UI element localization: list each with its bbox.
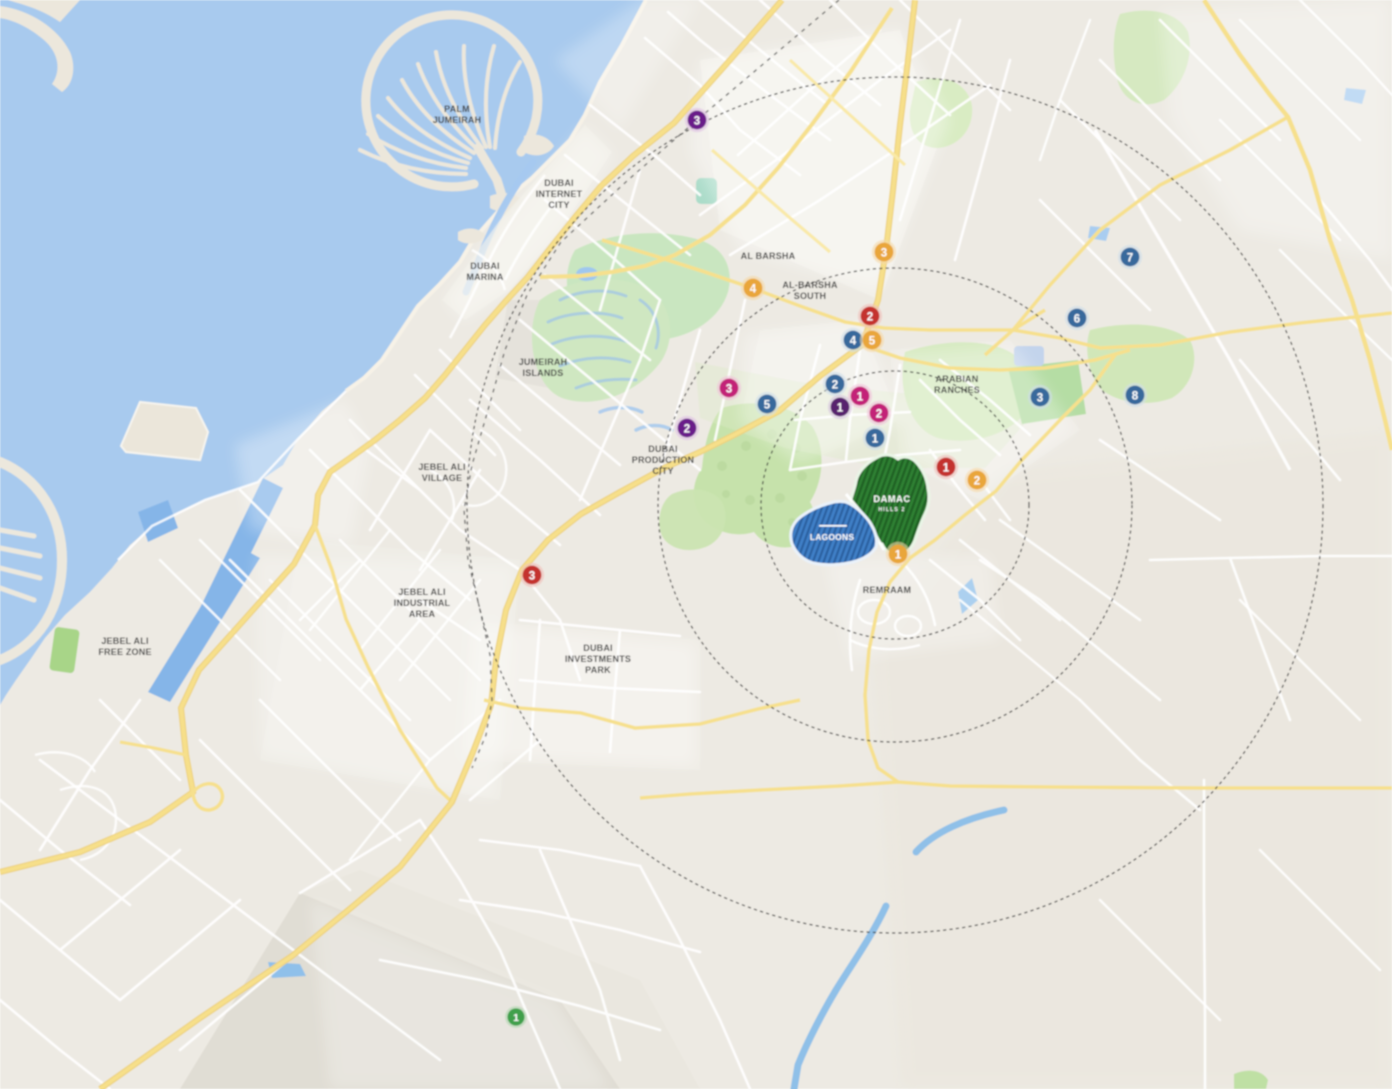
svg-text:1: 1 bbox=[513, 1012, 519, 1024]
svg-text:DUBAIMARINA: DUBAIMARINA bbox=[466, 261, 503, 282]
svg-text:3: 3 bbox=[529, 571, 535, 583]
svg-text:3: 3 bbox=[1037, 393, 1043, 405]
svg-text:2: 2 bbox=[974, 476, 980, 488]
svg-text:8: 8 bbox=[1132, 391, 1139, 403]
svg-text:JEBEL ALIFREE ZONE: JEBEL ALIFREE ZONE bbox=[98, 636, 151, 657]
svg-text:2: 2 bbox=[876, 409, 882, 421]
svg-text:LAGOONS: LAGOONS bbox=[810, 532, 855, 542]
svg-text:JEBEL ALIVILLAGE: JEBEL ALIVILLAGE bbox=[418, 462, 465, 483]
svg-text:3: 3 bbox=[881, 248, 887, 260]
svg-text:3: 3 bbox=[694, 116, 700, 128]
svg-text:6: 6 bbox=[1074, 314, 1080, 326]
svg-text:1: 1 bbox=[943, 463, 950, 475]
svg-text:4: 4 bbox=[850, 336, 857, 348]
svg-text:1: 1 bbox=[837, 403, 844, 415]
svg-text:2: 2 bbox=[684, 424, 690, 436]
svg-text:7: 7 bbox=[1127, 253, 1133, 265]
svg-text:JUMEIRAHISLANDS: JUMEIRAHISLANDS bbox=[519, 357, 568, 378]
svg-text:REMRAAM: REMRAAM bbox=[863, 585, 911, 595]
svg-text:DAMAC: DAMAC bbox=[873, 494, 910, 504]
svg-text:5: 5 bbox=[869, 336, 876, 348]
svg-text:HILLS 2: HILLS 2 bbox=[878, 507, 905, 513]
svg-text:AL BARSHA: AL BARSHA bbox=[741, 251, 796, 261]
svg-text:1: 1 bbox=[872, 434, 879, 446]
svg-text:1: 1 bbox=[857, 392, 864, 404]
svg-text:5: 5 bbox=[764, 400, 771, 412]
svg-text:ARABIANRANCHES: ARABIANRANCHES bbox=[934, 374, 980, 395]
svg-text:2: 2 bbox=[867, 312, 873, 324]
svg-text:3: 3 bbox=[726, 384, 732, 396]
svg-text:4: 4 bbox=[750, 284, 757, 296]
svg-text:1: 1 bbox=[895, 550, 902, 562]
svg-text:2: 2 bbox=[832, 380, 838, 392]
